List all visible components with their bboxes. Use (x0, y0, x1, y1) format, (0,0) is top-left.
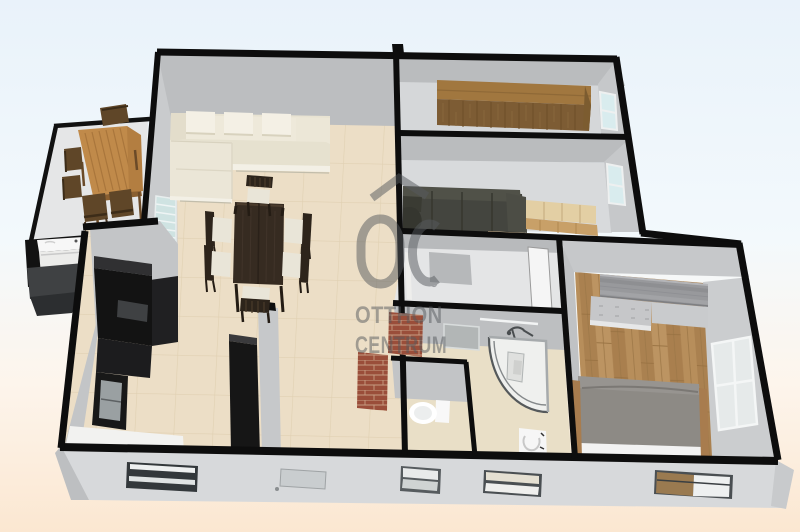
svg-text:OTTHON: OTTHON (355, 301, 443, 328)
svg-text:CENTRUM: CENTRUM (355, 333, 447, 359)
